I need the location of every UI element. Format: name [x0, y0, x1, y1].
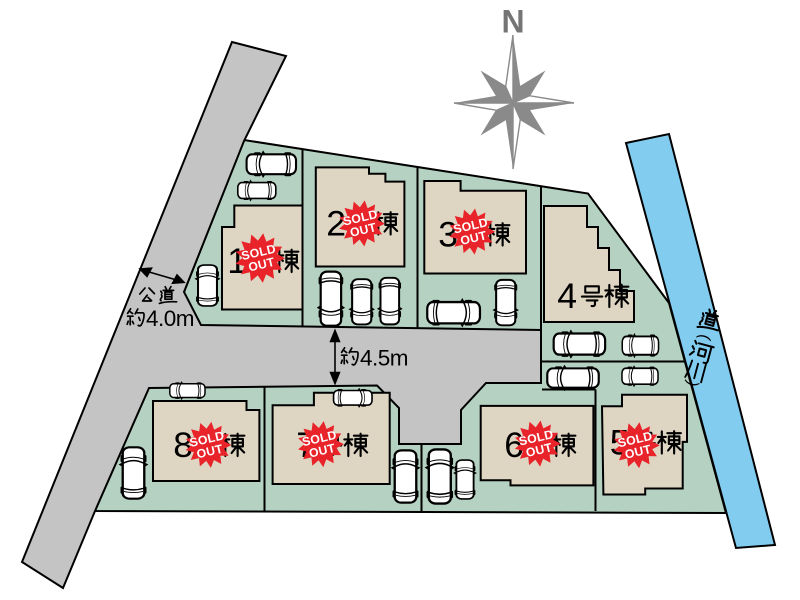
svg-text:N: N	[501, 4, 524, 40]
svg-text:4.0m: 4.0m	[146, 306, 194, 331]
svg-text:4: 4	[557, 276, 577, 316]
svg-text:4.5m: 4.5m	[360, 346, 408, 371]
